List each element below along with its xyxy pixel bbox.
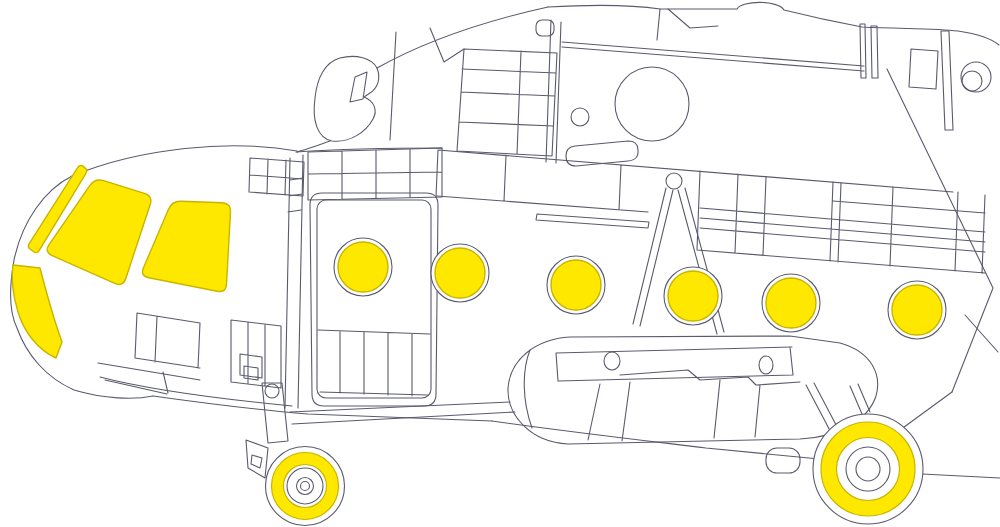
deck-top-edge	[377, 7, 548, 68]
deck-grid	[457, 49, 557, 156]
engine-intake-inner	[297, 72, 367, 152]
roof-grid-large	[308, 148, 442, 200]
porthole-mask-3	[551, 260, 601, 310]
fuel-tank-outline	[508, 336, 878, 444]
cargo-door-inner-frame	[317, 200, 431, 398]
engine-intake	[314, 56, 379, 141]
belly-rear-line	[492, 421, 840, 461]
cabin-sill-lines	[436, 150, 953, 228]
porthole-mask-4	[668, 271, 718, 321]
drive-shaft-strip	[562, 24, 878, 78]
roof-grid-small	[249, 158, 304, 196]
porthole-mask-1	[338, 242, 388, 292]
porthole-mask-5	[766, 278, 816, 328]
antenna-apex-circle	[666, 173, 682, 189]
deck-misc-lines	[390, 20, 561, 163]
belly-front-line	[153, 396, 492, 421]
filler-cap-1	[604, 352, 620, 370]
fin-diagonal	[887, 69, 993, 392]
upper-outline	[548, 2, 999, 45]
tail-thin-strip	[941, 31, 953, 130]
main-gear-axle-bar	[766, 448, 800, 473]
gearbox-small-circle	[571, 108, 589, 126]
tail-square-panel	[909, 49, 938, 89]
right-windshield-mask	[143, 201, 231, 291]
mask-scheme-sheet	[0, 0, 1000, 527]
tail-skid-line	[922, 474, 1000, 478]
mask-scheme-illustration	[0, 0, 1000, 527]
tail-band-grid	[697, 171, 985, 273]
lower-blister-mask	[12, 265, 62, 358]
exhaust-lozenge	[566, 141, 638, 166]
chin-panel-lines	[98, 313, 200, 394]
step-panel	[231, 320, 281, 388]
tail-rotor-hub-inner	[962, 71, 982, 91]
roof-notch-lines	[657, 9, 718, 40]
gearbox-circle	[615, 67, 689, 141]
bulkhead-lines	[285, 155, 303, 408]
fuel-tank-band	[556, 347, 793, 381]
porthole-mask-2	[435, 248, 485, 298]
cargo-door-outline	[310, 193, 438, 406]
porthole-mask-6	[892, 285, 942, 335]
paint-mask-layer	[12, 165, 946, 525]
filler-cap-2	[759, 356, 773, 374]
cargo-door-lower-panels	[318, 330, 430, 396]
tail-rotor-hub-outer	[961, 62, 991, 92]
step-light-circle	[265, 384, 279, 398]
